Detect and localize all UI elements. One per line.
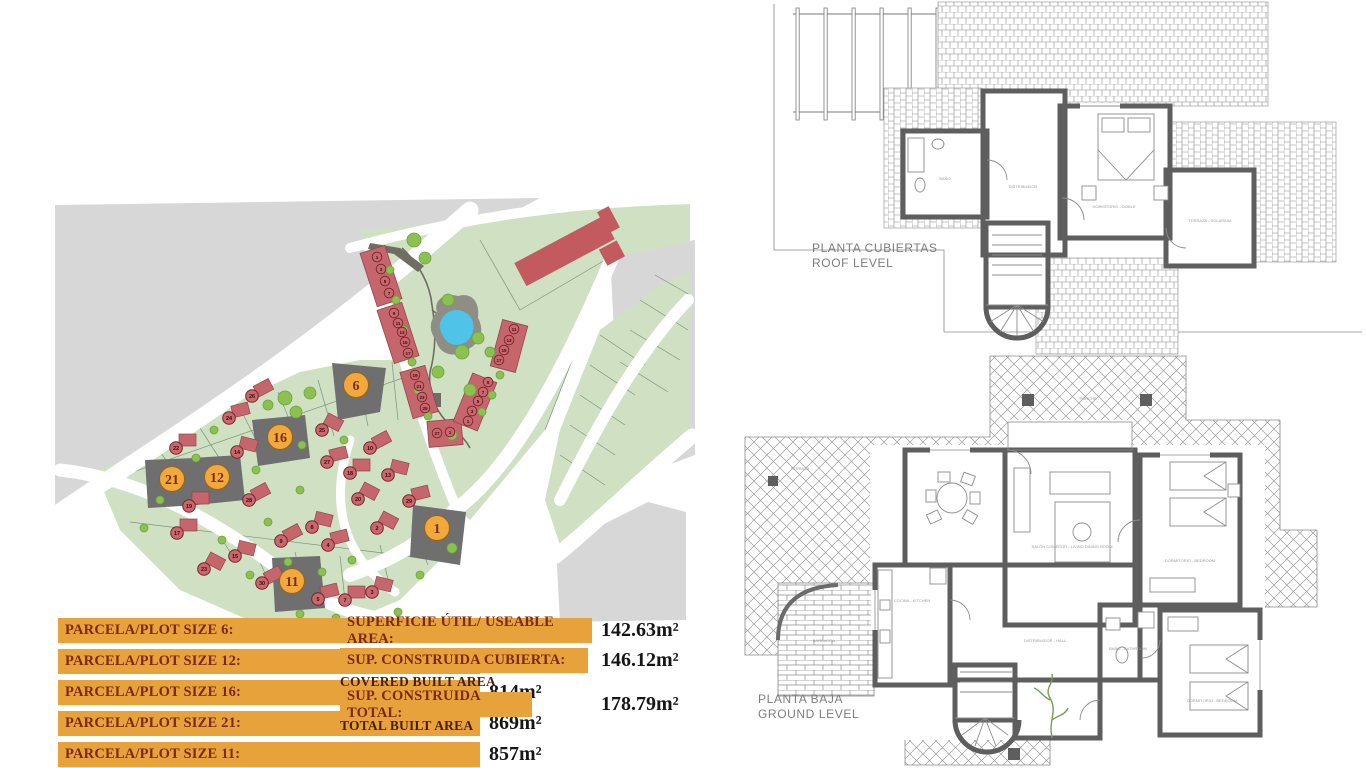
plot-size-value: 857m² [480, 742, 542, 767]
area-label: SUP. CONSTRUIDA TOTAL: [340, 692, 532, 717]
area-label: SUPERFICIE ÚTIL/ USEABLE AREA: [340, 618, 592, 643]
area-row: SUP. CONSTRUIDA CUBIERTA: 146.12m² [340, 648, 679, 673]
area-row: SUP. CONSTRUIDA TOTAL: 178.79m² [340, 692, 679, 717]
area-value: 178.79m² [532, 692, 679, 717]
area-sublabel: TOTAL BUILT AREA [340, 718, 473, 734]
property-brochure-page: 2624221425102718132028291982941715233057… [0, 0, 1366, 768]
area-row: SUPERFICIE ÚTIL/ USEABLE AREA: 142.63m² [340, 618, 679, 643]
area-value: 146.12m² [588, 648, 679, 673]
plot-size-row: PARCELA/PLOT SIZE 11: 857m² [58, 742, 542, 767]
plot-size-label: PARCELA/PLOT SIZE 11: [58, 742, 480, 767]
area-labels: PARCELA/PLOT SIZE 6: 814m² PARCELA/PLOT … [0, 0, 1366, 768]
area-value: 142.63m² [592, 618, 679, 643]
area-label: SUP. CONSTRUIDA CUBIERTA: [340, 648, 588, 673]
